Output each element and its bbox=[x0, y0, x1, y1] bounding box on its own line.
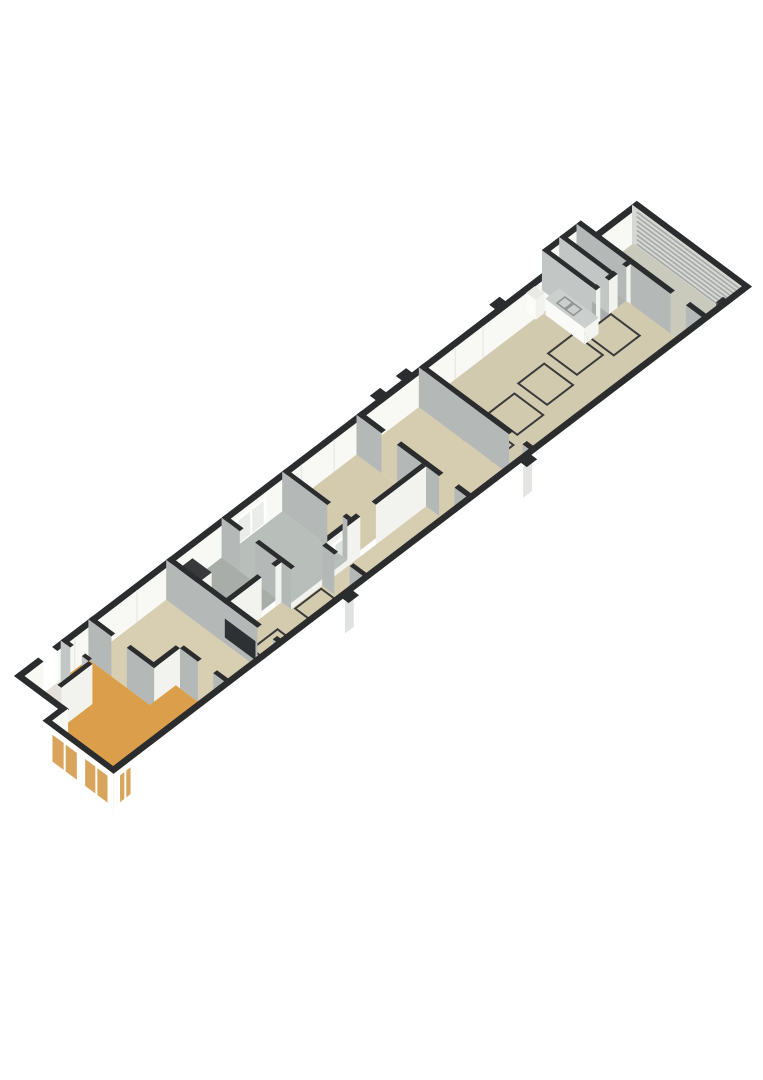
floorplan-canvas bbox=[0, 0, 763, 1080]
floorplan-3d bbox=[0, 0, 763, 1080]
